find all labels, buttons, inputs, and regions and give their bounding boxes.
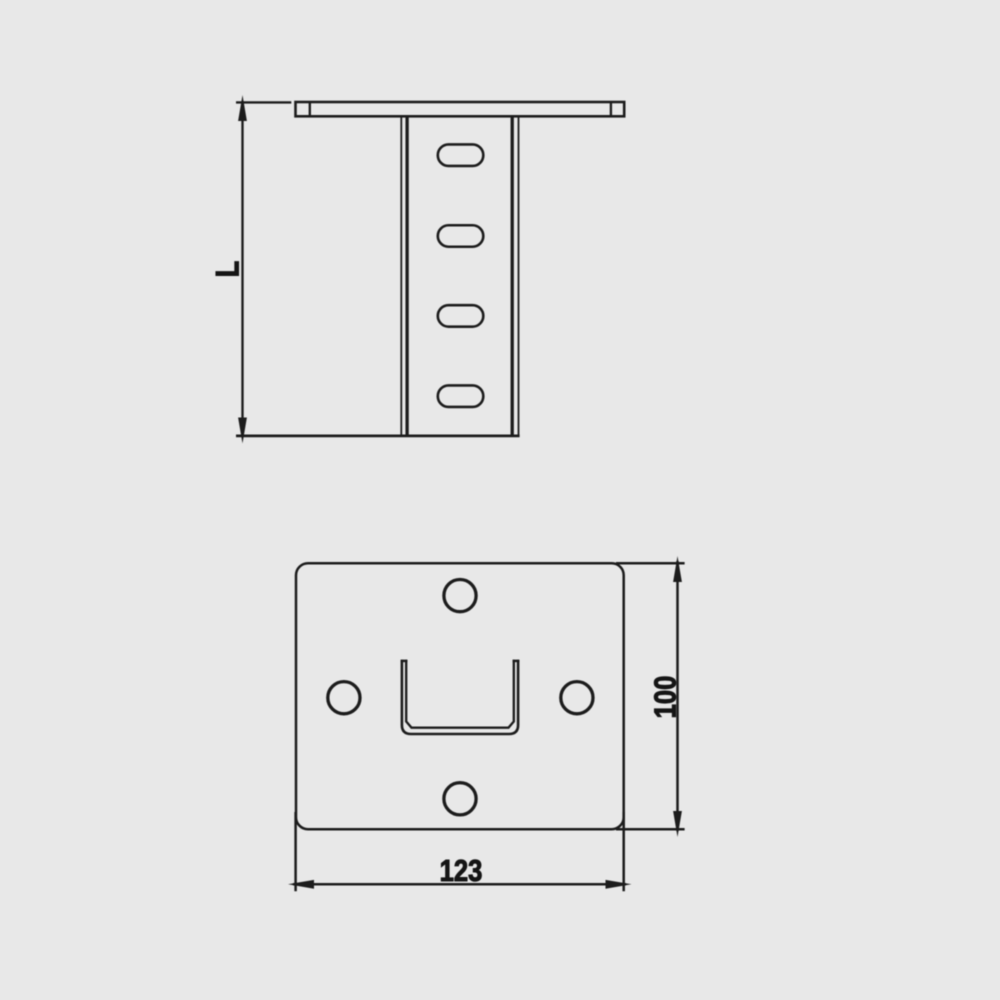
svg-text:L: L [211,261,247,278]
svg-text:100: 100 [648,676,682,719]
svg-text:123: 123 [440,854,483,888]
